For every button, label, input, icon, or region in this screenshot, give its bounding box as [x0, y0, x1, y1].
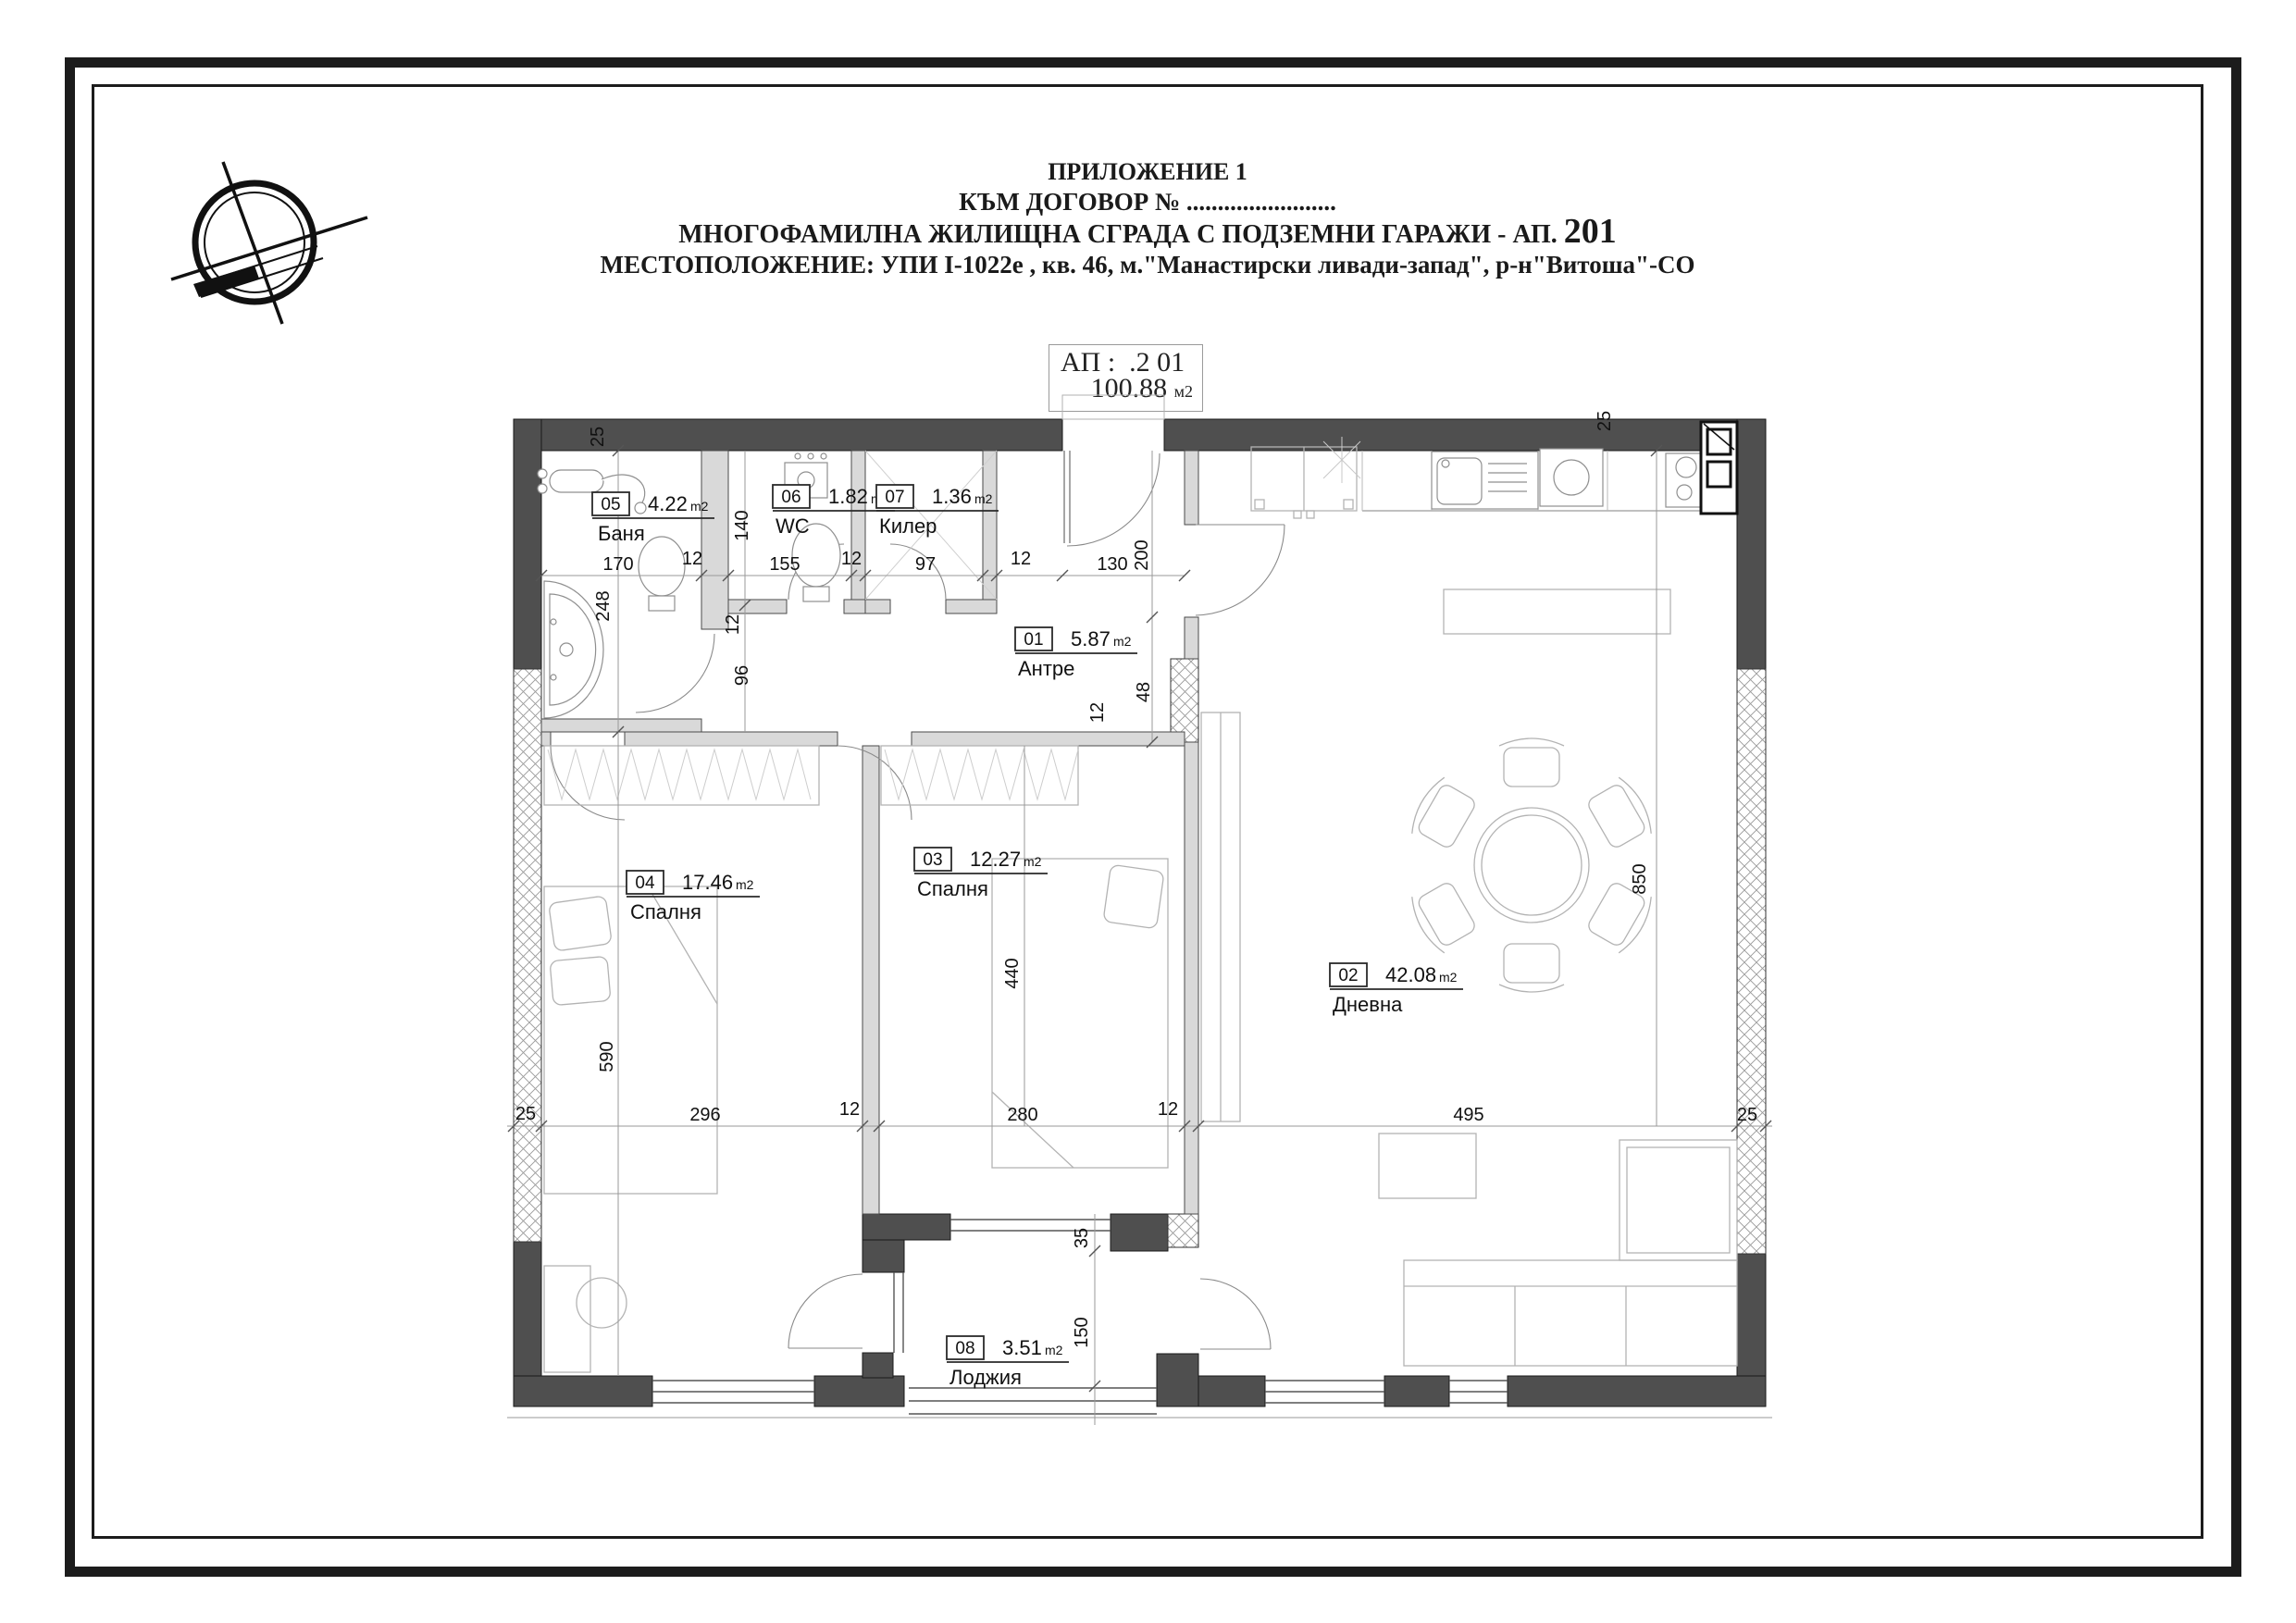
bedroom04-furniture: [544, 746, 819, 1372]
dim-140: 140: [732, 510, 752, 540]
svg-text:04: 04: [635, 873, 655, 893]
title-block: ПРИЛОЖЕНИЕ 1 КЪМ ДОГОВОР № .............…: [315, 157, 1980, 279]
dim-200: 200: [1132, 539, 1152, 570]
kitchen: [1251, 422, 1737, 634]
wardrobe-bedroom03: [881, 746, 1078, 805]
window-loggia-bottom: [909, 1388, 1157, 1414]
svg-text:17.46: 17.46: [682, 871, 733, 894]
svg-text:4.22: 4.22: [648, 492, 688, 515]
svg-text:Антре: Антре: [1018, 657, 1074, 680]
dim-25-br: 25: [1737, 1105, 1757, 1125]
fridge-icon: [1701, 422, 1737, 514]
bed-bedroom04: [544, 886, 717, 1194]
dim-35: 35: [1072, 1228, 1092, 1248]
window-living-1: [1265, 1381, 1384, 1403]
dim-130: 130: [1097, 554, 1127, 575]
hall-living-door: [1196, 525, 1285, 615]
svg-text:m2: m2: [974, 491, 993, 506]
title-line-4: МЕСТОПОЛОЖЕНИЕ: УПИ I-1022е , кв. 46, м.…: [315, 250, 1980, 279]
dim-850: 850: [1630, 863, 1650, 894]
bookshelf: [1201, 712, 1240, 1121]
svg-text:05: 05: [601, 495, 620, 514]
dim-440: 440: [1002, 958, 1023, 988]
dim-25-tl: 25: [588, 427, 608, 447]
svg-text:03: 03: [923, 850, 942, 870]
svg-text:m2: m2: [1024, 854, 1042, 869]
dim-25-bl: 25: [515, 1104, 536, 1124]
dim-150: 150: [1072, 1317, 1092, 1347]
sofa: [1404, 1140, 1737, 1366]
svg-text:08: 08: [955, 1339, 974, 1358]
bedroom04-door: [551, 746, 625, 820]
dimension-lines: [507, 445, 1772, 1425]
room-label-bathroom: 05 4.22 m2 Баня: [592, 492, 714, 545]
window-bedroom04: [652, 1381, 814, 1403]
dim-12-c: 12: [1011, 549, 1031, 569]
dim-590: 590: [597, 1041, 617, 1072]
dim-296: 296: [689, 1105, 720, 1125]
washing-machine-icon: [1540, 449, 1603, 506]
svg-text:m2: m2: [690, 499, 709, 514]
window-living-2: [1449, 1381, 1508, 1403]
room-label-loggia: 08 3.51 m2 Лоджия: [947, 1336, 1069, 1389]
dim-12-f: 12: [723, 614, 743, 635]
svg-text:m2: m2: [736, 877, 754, 892]
desk-bedroom04: [544, 1266, 627, 1372]
svg-text:m2: m2: [1113, 634, 1132, 649]
svg-text:1.82: 1.82: [828, 485, 868, 508]
svg-text:3.51: 3.51: [1002, 1336, 1042, 1359]
svg-text:1.36: 1.36: [932, 485, 972, 508]
drawing-sheet: ПРИЛОЖЕНИЕ 1 КЪМ ДОГОВОР № .............…: [0, 0, 2296, 1623]
hatched-wall-sections: [514, 659, 1766, 1254]
entry-closet: [1251, 447, 1357, 518]
dim-495: 495: [1453, 1105, 1483, 1125]
svg-text:42.08: 42.08: [1385, 963, 1436, 986]
dim-97: 97: [915, 554, 936, 575]
room-label-hall: 01 5.87 m2 Антре: [1015, 627, 1137, 680]
svg-text:WC: WC: [776, 514, 810, 538]
loggia-door: [1200, 1279, 1271, 1349]
dim-12-d: 12: [839, 1099, 860, 1120]
room-label-living: 02 42.08 m2 Дневна: [1330, 963, 1463, 1016]
room-label-bedroom03: 03 12.27 m2 Спалня: [914, 848, 1048, 900]
dining-set: [1406, 738, 1657, 992]
dim-248: 248: [593, 590, 614, 621]
room-label-bedroom04: 04 17.46 m2 Спалня: [627, 871, 760, 923]
dim-280: 280: [1007, 1105, 1037, 1125]
title-line-1: ПРИЛОЖЕНИЕ 1: [315, 157, 1980, 187]
title-line-2: КЪМ ДОГОВОР № ........................: [315, 187, 1980, 217]
svg-text:Дневна: Дневна: [1333, 993, 1403, 1016]
svg-text:Лоджия: Лоджия: [949, 1366, 1022, 1389]
svg-text:02: 02: [1338, 966, 1358, 985]
dim-12-g: 12: [1087, 702, 1108, 723]
svg-text:m2: m2: [1439, 970, 1458, 985]
room-label-storage: 07 1.36 m2 Килер: [876, 485, 999, 538]
toilet-icon: [639, 537, 685, 611]
svg-text:12.27: 12.27: [970, 848, 1021, 871]
svg-text:5.87: 5.87: [1071, 627, 1111, 650]
svg-text:m2: m2: [1045, 1343, 1063, 1357]
dim-170: 170: [602, 554, 633, 575]
dim-48: 48: [1134, 682, 1154, 702]
dining-chairs: [1406, 738, 1657, 992]
window-loggia-left: [894, 1272, 903, 1353]
dim-12-b: 12: [841, 549, 862, 569]
floor-plan: 170 12 155 12 97 12 130 25 296 12 280 12…: [500, 393, 1814, 1471]
dim-96: 96: [732, 665, 752, 686]
dim-12-e: 12: [1158, 1099, 1178, 1120]
svg-text:01: 01: [1024, 630, 1043, 650]
dim-12-a: 12: [682, 549, 702, 569]
dim-155: 155: [769, 554, 800, 575]
title-line-3: МНОГОФАМИЛНА ЖИЛИЩНА СГРАДА С ПОДЗЕМНИ Г…: [315, 217, 1980, 250]
svg-text:07: 07: [885, 488, 904, 507]
wardrobe-bedroom04: [544, 746, 819, 805]
svg-text:Спалня: Спалня: [630, 900, 701, 923]
coffee-table: [1379, 1134, 1476, 1198]
entrance-door: [1062, 395, 1164, 546]
dim-25-tr: 25: [1595, 411, 1615, 431]
svg-text:Килер: Килер: [879, 514, 937, 538]
bedroom04-loggia-door: [788, 1274, 863, 1348]
kitchen-sink-icon: [1432, 452, 1538, 509]
apartment-number: 201: [1564, 212, 1617, 251]
svg-text:Баня: Баня: [598, 522, 645, 545]
bathroom-door: [636, 634, 714, 712]
svg-text:Спалня: Спалня: [917, 877, 988, 900]
svg-text:06: 06: [781, 488, 800, 507]
